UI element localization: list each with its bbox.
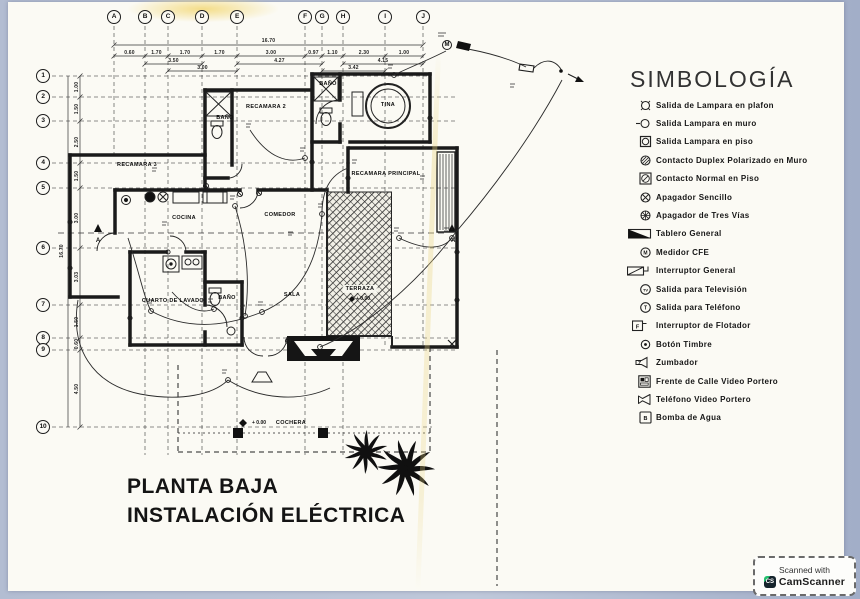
plan-title-line2: INSTALACIÓN ELÉCTRICA <box>127 501 405 530</box>
three-way-switch-icon <box>622 209 652 222</box>
video-intercom-phone-icon <box>622 393 652 406</box>
legend-item-label: Zumbador <box>656 358 698 367</box>
legend-item: Salida Lampara en piso <box>622 135 753 149</box>
legend-item: Teléfono Video Portero <box>622 392 751 406</box>
svg-text:TV: TV <box>643 287 648 292</box>
legend-item-label: Apagador de Tres Vías <box>656 211 750 220</box>
ceiling-lamp-outlet-icon <box>622 99 652 112</box>
tv-outlet-icon: TV <box>622 283 652 296</box>
floor-lamp-outlet-icon <box>622 135 652 148</box>
legend-item-label: Salida para Televisión <box>656 285 747 294</box>
svg-text:M: M <box>643 250 647 256</box>
legend-item-label: Bomba de Agua <box>656 413 721 422</box>
legend-item: Apagador Sencillo <box>622 190 732 204</box>
buzzer-icon: Z <box>622 356 652 369</box>
camscanner-brand: CamScanner <box>779 576 845 588</box>
legend-item: ZZumbador <box>622 356 698 370</box>
electrical-symbols <box>68 73 459 383</box>
legend-item: Salida Lampara en muro <box>622 116 757 130</box>
legend-item-label: Contacto Duplex Polarizado en Muro <box>656 156 807 165</box>
float-switch-icon: F <box>622 319 652 332</box>
scanned-with-text: Scanned with <box>779 565 830 575</box>
main-panel-icon <box>622 228 652 240</box>
legend-item-label: Contacto Normal en Piso <box>656 174 759 183</box>
legend-item: MMedidor CFE <box>622 245 709 259</box>
legend-item-label: Interruptor de Flotador <box>656 321 751 330</box>
camscanner-badge: Scanned with CS CamScanner <box>753 556 856 596</box>
legend-item: TVSalida para Televisión <box>622 282 747 296</box>
legend-item-label: Tablero General <box>656 229 722 238</box>
legend-item: Contacto Duplex Polarizado en Muro <box>622 153 807 167</box>
legend-item: Tablero General <box>622 227 722 241</box>
camscanner-row: CS CamScanner <box>764 576 845 588</box>
svg-text:B: B <box>644 416 648 422</box>
legend-item-label: Medidor CFE <box>656 248 709 257</box>
svg-text:T: T <box>644 305 647 311</box>
legend-item-label: Teléfono Video Portero <box>656 395 751 404</box>
legend-item-label: Salida Lampara en piso <box>656 137 753 146</box>
svg-text:Z: Z <box>638 361 641 367</box>
legend-item-label: Botón Timbre <box>656 340 712 349</box>
doorbell-button-icon <box>622 338 652 351</box>
cfe-meter-icon: M <box>622 246 652 259</box>
legend-item: Interruptor General <box>622 264 736 278</box>
legend-item-label: Frente de Calle Video Portero <box>656 377 778 386</box>
legend-item-label: Salida Lampara en muro <box>656 119 757 128</box>
legend-item-label: Apagador Sencillo <box>656 193 732 202</box>
walls <box>70 74 457 347</box>
legend-item: Frente de Calle Video Portero <box>622 374 778 388</box>
legend-item: Apagador de Tres Vías <box>622 208 750 222</box>
legend-item-label: Interruptor General <box>656 266 736 275</box>
legend-item: TSalida para Teléfono <box>622 300 741 314</box>
plan-title-line1: PLANTA BAJA <box>127 472 405 501</box>
legend-item: Salida de Lampara en plafon <box>622 98 774 112</box>
camscanner-icon: CS <box>764 576 776 588</box>
single-switch-icon <box>622 191 652 204</box>
wall-lamp-outlet-icon <box>622 117 652 130</box>
entry-steps <box>287 336 360 361</box>
legend-title: SIMBOLOGÍA <box>630 66 794 93</box>
section-line <box>58 224 456 233</box>
water-pump-icon: B <box>622 411 652 424</box>
legend-item: Botón Timbre <box>622 337 712 351</box>
terraza-hatch <box>328 192 392 336</box>
svg-text:F: F <box>636 325 640 331</box>
floor-contact-icon <box>622 172 652 185</box>
duplex-contact-icon <box>622 154 652 167</box>
title-block: PLANTA BAJA INSTALACIÓN ELÉCTRICA <box>127 472 405 530</box>
closet <box>437 152 455 232</box>
legend-item: FInterruptor de Flotador <box>622 319 751 333</box>
legend-item-label: Salida de Lampara en plafon <box>656 101 774 110</box>
main-breaker-icon <box>622 264 652 277</box>
legend-item-label: Salida para Teléfono <box>656 303 741 312</box>
cochera-boundary <box>178 347 497 586</box>
scanned-electrical-plan-page: { "colors": {"paper":"#fbfaf4","border_b… <box>0 0 860 599</box>
phone-outlet-icon: T <box>622 301 652 314</box>
video-intercom-street-icon <box>622 375 652 388</box>
legend-item: BBomba de Agua <box>622 411 721 425</box>
legend-item: Contacto Normal en Piso <box>622 172 759 186</box>
